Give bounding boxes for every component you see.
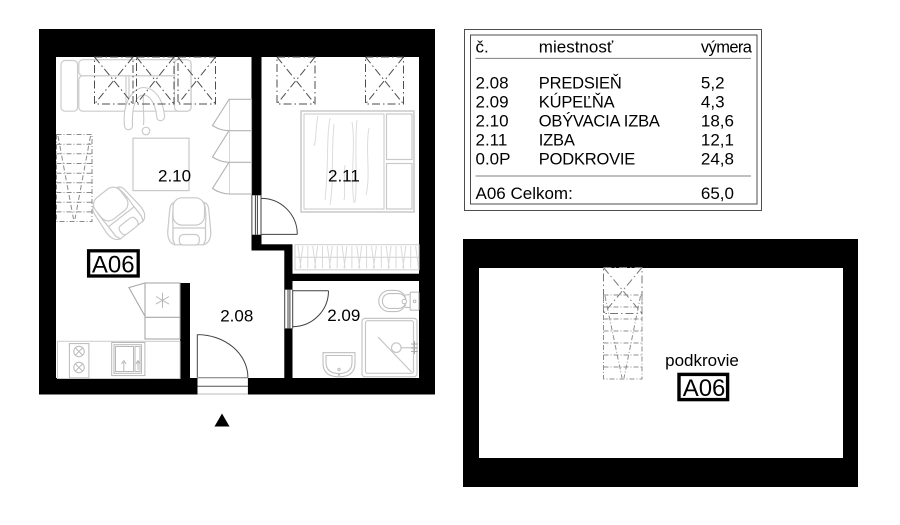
svg-text:A06 Celkom:: A06 Celkom: — [476, 184, 573, 203]
svg-text:24,8: 24,8 — [701, 149, 734, 168]
svg-text:OBÝVACIA IZBA: OBÝVACIA IZBA — [539, 111, 660, 130]
svg-text:5,2: 5,2 — [701, 73, 725, 92]
svg-text:0.0P: 0.0P — [476, 149, 511, 168]
svg-text:2.09: 2.09 — [327, 306, 360, 325]
svg-text:A06: A06 — [92, 251, 135, 278]
svg-text:A06: A06 — [683, 375, 726, 402]
svg-text:2.08: 2.08 — [476, 73, 509, 92]
svg-text:65,0: 65,0 — [701, 184, 734, 203]
svg-text:miestnosť: miestnosť — [539, 37, 614, 56]
svg-text:KÚPEĽŇA: KÚPEĽŇA — [539, 92, 615, 111]
svg-text:18,6: 18,6 — [701, 111, 734, 130]
svg-text:PREDSIEŇ: PREDSIEŇ — [539, 73, 622, 92]
svg-text:podkrovie: podkrovie — [665, 351, 739, 370]
svg-text:4,3: 4,3 — [701, 92, 725, 111]
svg-text:IZBA: IZBA — [539, 131, 575, 149]
svg-text:12,1: 12,1 — [701, 130, 734, 149]
svg-text:2.11: 2.11 — [476, 130, 508, 149]
svg-text:výmera: výmera — [701, 38, 753, 56]
svg-text:2.09: 2.09 — [476, 92, 509, 111]
svg-text:2.10: 2.10 — [158, 167, 191, 186]
svg-text:č.: č. — [476, 37, 489, 56]
svg-text:2.10: 2.10 — [476, 111, 509, 130]
svg-text:2.11: 2.11 — [328, 167, 360, 186]
svg-text:2.08: 2.08 — [220, 306, 253, 325]
svg-text:PODKROVIE: PODKROVIE — [539, 150, 636, 168]
